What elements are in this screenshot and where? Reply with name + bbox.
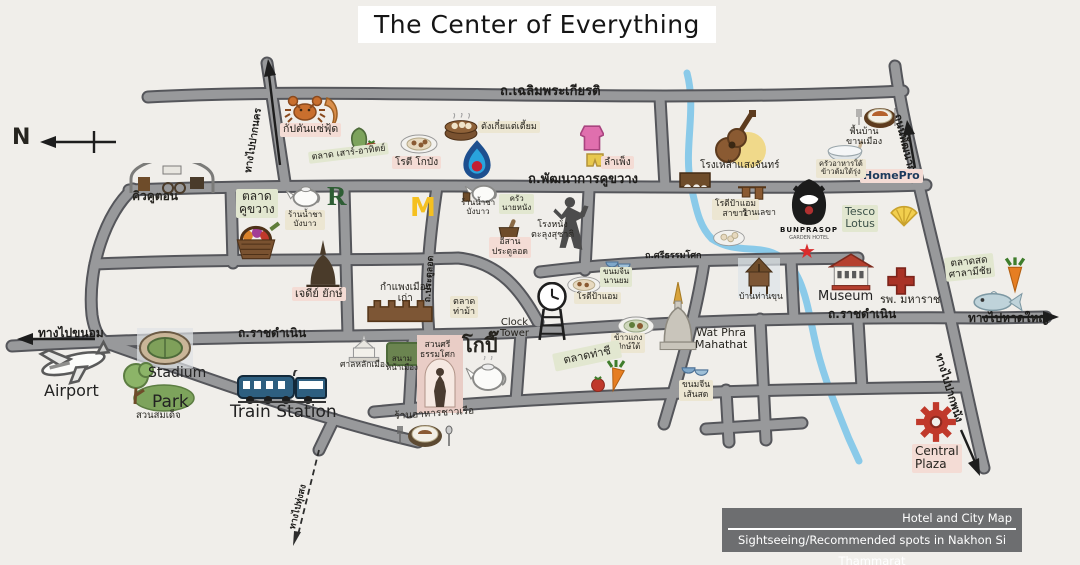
khukwang-market-label: ตลาด คูขวาง bbox=[236, 189, 278, 218]
roti-kobang-label: โรตี โกบัง bbox=[392, 156, 441, 169]
train-icon bbox=[236, 370, 328, 406]
saengchan-bar-label: โรงเหล้าแสงจันทร์ bbox=[700, 160, 779, 171]
roti-pa-aem-label: โรตีป้าแอม bbox=[574, 292, 621, 304]
captain-seafood-label: กัปตันแซ่ฟุ้ด bbox=[280, 123, 341, 137]
train-station-label: Train Station bbox=[230, 403, 337, 422]
road-label-to-pak-nakhon: ทางไปปากนคร bbox=[243, 107, 264, 173]
kopi-teapot-icon bbox=[464, 356, 510, 394]
teapot-icon-khukwang bbox=[284, 179, 322, 209]
road-label-ratchadamnoen-left: ถ.ราชดำเนิน bbox=[238, 327, 306, 340]
clock-tower-label: Clock Tower bbox=[500, 317, 529, 339]
hospital-cross-icon bbox=[887, 267, 915, 295]
kopi-label: โกปี๊ bbox=[462, 334, 498, 356]
mcdonalds-icon: M bbox=[410, 194, 436, 223]
road-label-to-thung-song: ทางไปทุ่งสง bbox=[288, 484, 309, 531]
lak-mueang-label: ศาลหลักเมือง bbox=[340, 361, 389, 371]
bus-terminal-label: คิวคูตอน bbox=[132, 190, 178, 203]
road-label-chaloem: ถ.เฉลิมพระเกียรติ bbox=[500, 85, 601, 100]
dimsum-shop-label: ตังเกี๋ยแต่เตี้ยม bbox=[478, 121, 540, 133]
map-title: The Center of Everything bbox=[374, 10, 700, 39]
baan-than-khun-label: บ้านท่านขุน bbox=[739, 293, 783, 303]
road-label-si-thammasok: ถ.ศรีธรรมโศก bbox=[645, 251, 702, 261]
compass-n-label: N bbox=[12, 126, 30, 151]
central-plaza-logo bbox=[914, 400, 958, 444]
city-map-canvas: The Center of Everything N Hotel and Cit… bbox=[0, 0, 1080, 565]
salamichai-market-label: ตลาดสด ศาลามีชัย bbox=[944, 253, 995, 282]
dimsum-plate-icon-2 bbox=[712, 227, 746, 249]
airport-label: Airport bbox=[44, 382, 99, 400]
wat-phra-mahathat-stupa-icon bbox=[658, 281, 698, 357]
tesco-lotus-label: Tesco Lotus bbox=[842, 205, 878, 232]
shell-station-icon bbox=[888, 202, 920, 228]
museum-building-icon bbox=[828, 252, 874, 292]
sanam-na-mueang-label: สนาม หน้าเมือง bbox=[386, 355, 418, 373]
roti-plate-icon bbox=[399, 131, 439, 157]
tea-bangbao2-label: ร้านน้ำชา บังบาว bbox=[461, 199, 495, 217]
noodle-bowls-icon-2 bbox=[680, 362, 710, 380]
legend-line2: Sightseeing/Recommended spots in Nakhon … bbox=[722, 530, 1022, 550]
nang-talung-label: โรงหนัง ตะลุงสุชาติ bbox=[531, 220, 574, 240]
guitar-icon bbox=[712, 110, 756, 164]
krua-nai-nang-label: ครัว นายหนัง bbox=[499, 194, 534, 214]
bridge-icon bbox=[680, 173, 710, 187]
jedi-yak-label: เจดีย์ ยักษ์ bbox=[292, 287, 346, 301]
giant-chedi-icon bbox=[302, 239, 344, 293]
bunprasop-label: BUNPRASOP bbox=[779, 227, 839, 235]
road-label-phatthanakan: ถ.พัฒนาการคูขวาง bbox=[528, 173, 638, 188]
museum-label: Museum bbox=[818, 290, 873, 305]
stadium-label: Stadium bbox=[148, 366, 206, 382]
bunprasop-hotel-logo bbox=[786, 177, 832, 227]
carrot-icon-thachi bbox=[606, 358, 626, 394]
road-label-ratchadamnoen-right: ถ.ราชดำเนิน bbox=[828, 308, 896, 321]
tomato-icon-thachi bbox=[590, 376, 606, 392]
ran-lekha-label: ร้านเลขา bbox=[742, 209, 776, 219]
maharaj-hospital-label: รพ. มหาราช bbox=[880, 294, 940, 306]
map-title-box: The Center of Everything bbox=[358, 6, 716, 43]
vegetable-basket-icon bbox=[231, 221, 281, 263]
chao-ruea-label: ร้านอาหารชาวเรือ bbox=[394, 405, 474, 422]
wat-phra-label: Wat Phra Mahathat bbox=[695, 327, 747, 352]
hotel-star-icon: ★ bbox=[798, 240, 816, 262]
lampheng-label: ลำเพ็ง bbox=[601, 156, 634, 169]
restaurant-plate-cutlery-icon bbox=[396, 422, 454, 450]
tea-bangbao1-label: ร้านน้ำชา บังบาว bbox=[285, 210, 325, 230]
phuenban-label: พื้นบ้าน ขานเมือง bbox=[846, 127, 882, 147]
old-wall-label: กำแพงเมือง เก่า bbox=[380, 282, 431, 304]
road-label-to-hat-yai: ทางไปหาดใหญ่ bbox=[968, 312, 1049, 325]
legend-box: Hotel and City Map Sightseeing/Recommend… bbox=[722, 508, 1022, 552]
tha-ma-market-label: ตลาด ท่าม้า bbox=[450, 296, 478, 318]
suan-si-thammasok-label: สวนศรี ธรรมโศก bbox=[420, 341, 455, 360]
isan-pratulod-label: อีสาน ประตูลอด bbox=[489, 237, 531, 258]
khanom-jin-nanyom-label: ขนมจีน นานยม bbox=[600, 267, 632, 287]
khanom-jin-sensod-label: ขนมจีน เส้นสด bbox=[679, 380, 713, 401]
crab-icon bbox=[284, 94, 326, 124]
clothes-shirt-icon bbox=[580, 124, 604, 152]
compass-arrow-icon bbox=[36, 128, 120, 156]
krua-tai-label: ครัวอาหารใต้ ข้าวต้มใต้รุ่ง bbox=[816, 159, 866, 178]
r-coffee-icon: R bbox=[327, 181, 347, 211]
central-plaza-label: Central Plaza bbox=[912, 444, 962, 473]
fish-icon bbox=[970, 289, 1024, 313]
park-thai-label: สวนสมเด็จ bbox=[136, 411, 181, 422]
homepro-label: HomePro bbox=[860, 169, 923, 183]
legend-line1: Hotel and City Map bbox=[722, 508, 1022, 528]
dimsum-steamer-icon bbox=[443, 113, 479, 141]
